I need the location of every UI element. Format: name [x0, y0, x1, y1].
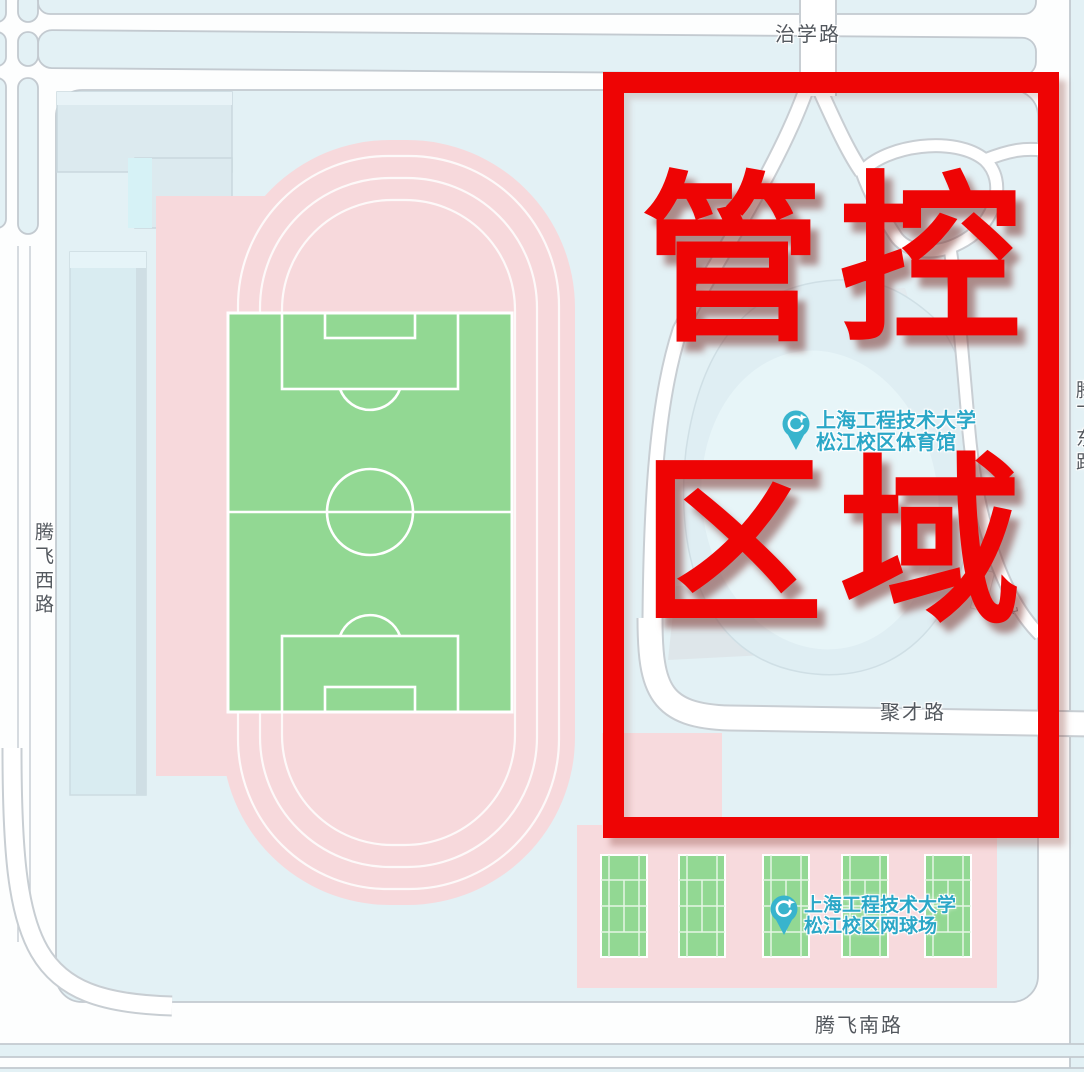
building-1-roof-highlight — [57, 92, 232, 105]
control-zone-label-line2: 区域 — [603, 448, 1059, 645]
road-label-tengfei-south: 腾飞南路 — [815, 1015, 903, 1037]
poi-tennis-courts[interactable]: 上海工程技术大学 松江校区网球场 — [770, 895, 956, 937]
poi-tennis-name-line1: 上海工程技术大学 — [804, 895, 956, 916]
control-zone-label-line1: 管控 — [603, 166, 1059, 363]
building-2-shadow-edge — [136, 268, 146, 795]
road-label-zhixue: 治学路 — [775, 24, 841, 46]
soccer-field — [228, 313, 512, 712]
road-label-east-clipped: 腾飞东路 — [1072, 380, 1084, 476]
sports-venue-pin-icon — [770, 895, 798, 937]
poi-tennis-name-line2: 松江校区网球场 — [804, 916, 956, 937]
building-2-roof-highlight — [70, 252, 146, 268]
road-label-tengfei-west: 腾飞西路 — [31, 522, 53, 618]
building-1-highlight — [128, 158, 152, 228]
building-2 — [70, 252, 146, 795]
